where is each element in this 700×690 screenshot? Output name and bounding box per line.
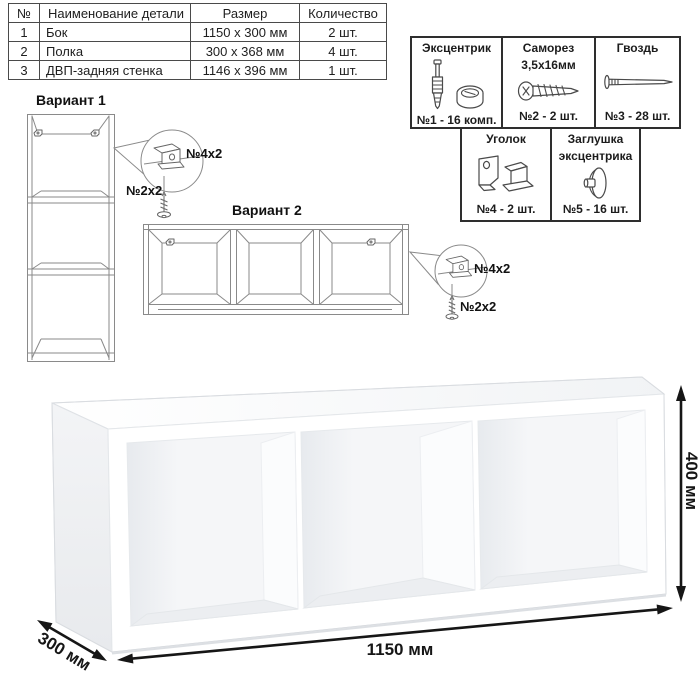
parts-table-header-row: № Наименование детали Размер Количество xyxy=(9,4,387,23)
cell-name: Бок xyxy=(40,23,191,42)
screw-icon xyxy=(517,72,581,109)
variant1-title: Вариант 1 xyxy=(36,92,106,108)
screw-qty-label: №2х2 xyxy=(126,183,162,198)
bracket-qty-label: №4х2 xyxy=(186,146,222,161)
height-dimension-label: 400 мм xyxy=(681,441,700,521)
hardware-count: №3 - 28 шт. xyxy=(605,109,671,123)
parts-table: № Наименование детали Размер Количество … xyxy=(8,3,387,80)
variant2-wireframe-drawing xyxy=(142,221,410,318)
cell-size: 300 х 368 мм xyxy=(191,42,300,61)
hardware-cell-bracket: Уголок №4 - 2 шт. xyxy=(460,127,552,222)
hardware-name: Уголок xyxy=(486,133,526,146)
assembly-instruction-sheet: № Наименование детали Размер Количество … xyxy=(0,0,700,690)
hardware-cell-screw: Саморез 3,5х16мм №2 - 2 шт. xyxy=(501,36,596,129)
table-row: 1 Бок 1150 х 300 мм 2 шт. xyxy=(9,23,387,42)
variant2-title: Вариант 2 xyxy=(232,202,302,218)
screw-qty-label: №2х2 xyxy=(460,299,496,314)
hardware-count: №2 - 2 шт. xyxy=(519,109,578,123)
hardware-count: №5 - 16 шт. xyxy=(563,202,629,216)
nail-icon xyxy=(602,55,674,109)
cell-num: 2 xyxy=(9,42,40,61)
hardware-name: Заглушка xyxy=(568,133,624,146)
cell-name: ДВП-задняя стенка xyxy=(40,61,191,80)
cell-size: 1146 х 396 мм xyxy=(191,61,300,80)
cell-num: 3 xyxy=(9,61,40,80)
variant1-wireframe-drawing xyxy=(26,112,116,364)
hardware-cell-cap: Заглушка эксцентрика №5 - 16 шт. xyxy=(550,127,641,222)
hardware-name: Эксцентрик xyxy=(422,42,491,55)
cell-name: Полка xyxy=(40,42,191,61)
screw-icon xyxy=(446,296,458,319)
hardware-cell-eccentric: Эксцентрик №1 - 16 комп. xyxy=(410,36,503,129)
variant1-detail-callout xyxy=(108,118,230,230)
cell-qty: 2 шт. xyxy=(300,23,387,42)
hardware-count: №1 - 16 комп. xyxy=(417,113,497,127)
cell-size: 1150 х 300 мм xyxy=(191,23,300,42)
table-row: 3 ДВП-задняя стенка 1146 х 396 мм 1 шт. xyxy=(9,61,387,80)
cam-cap-icon xyxy=(579,163,613,202)
hardware-count: №4 - 2 шт. xyxy=(477,202,536,216)
variant2-detail-callout xyxy=(408,240,520,332)
header-qty: Количество xyxy=(300,4,387,23)
hardware-cell-nail: Гвоздь №3 - 28 шт. xyxy=(594,36,681,129)
eccentric-and-cam-icon xyxy=(421,59,493,113)
header-num: № xyxy=(9,4,40,23)
shelf-left-face xyxy=(52,403,112,652)
corner-bracket-icon xyxy=(475,146,537,202)
hardware-name2: 3,5х16мм xyxy=(521,59,575,72)
cell-qty: 1 шт. xyxy=(300,61,387,80)
width-dimension-label: 1150 мм xyxy=(330,640,470,660)
cell-qty: 4 шт. xyxy=(300,42,387,61)
hardware-name: Саморез xyxy=(523,42,575,55)
hardware-name: Гвоздь xyxy=(617,42,659,55)
hardware-kit-row2: Уголок №4 - 2 шт. Заглушка эксцентрика xyxy=(460,127,641,222)
table-row: 2 Полка 300 х 368 мм 4 шт. xyxy=(9,42,387,61)
bracket-qty-label: №4х2 xyxy=(474,261,510,276)
header-size: Размер xyxy=(191,4,300,23)
header-name: Наименование детали xyxy=(40,4,191,23)
hardware-name2: эксцентрика xyxy=(559,150,633,163)
hardware-kit-row1: Эксцентрик №1 - 16 комп. Само xyxy=(410,36,681,129)
cell-num: 1 xyxy=(9,23,40,42)
